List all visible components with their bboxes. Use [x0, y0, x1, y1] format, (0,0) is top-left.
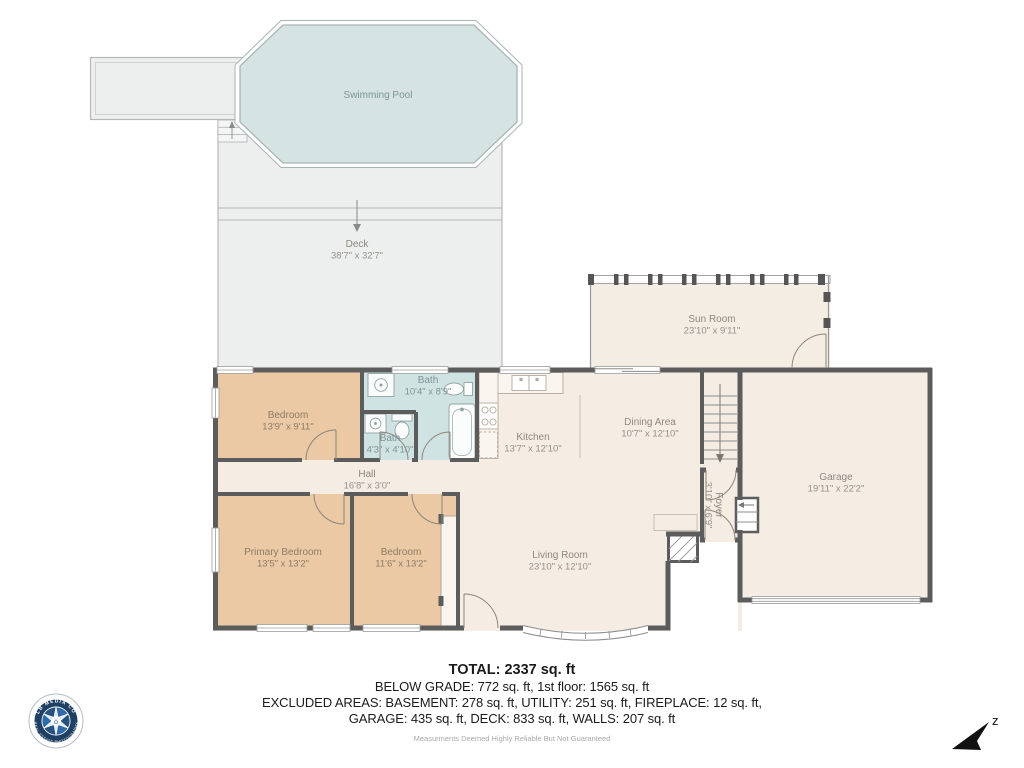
north-label: z: [992, 713, 999, 728]
bedroom-bottom-label: Bedroom: [381, 547, 422, 558]
bath-small-label: Bath: [380, 433, 401, 444]
svg-text:3'10" x 6'9": 3'10" x 6'9": [703, 482, 714, 529]
svg-text:10'7" x 12'10": 10'7" x 12'10": [621, 429, 678, 440]
sliding-door: [595, 367, 660, 374]
dining-label: Dining Area: [624, 417, 676, 428]
floor-plan-page: Swimming Pool Deck 38'7" x 32'7" Sun Roo…: [0, 0, 1024, 768]
svg-text:38'7" x 32'7": 38'7" x 32'7": [331, 251, 383, 262]
house-icon: ⌂: [54, 718, 58, 726]
window: [313, 625, 350, 632]
window: [217, 367, 253, 374]
garage-steps: [736, 498, 758, 532]
primary-bedroom-label: Primary Bedroom: [244, 547, 322, 558]
svg-text:4'3" x 4'10": 4'3" x 4'10": [367, 445, 414, 456]
svg-text:19'11" x 22'2": 19'11" x 22'2": [808, 484, 865, 495]
window: [363, 625, 420, 632]
svg-text:23'10" x 12'10": 23'10" x 12'10": [529, 562, 592, 573]
kitchen-stove: [479, 403, 498, 429]
below-grade-line: BELOW GRADE: 772 sq. ft, 1st floor: 1565…: [0, 679, 1024, 695]
hall-label: Hall: [358, 469, 375, 480]
window: [500, 367, 550, 374]
svg-text:11'6" x 13'2": 11'6" x 13'2": [375, 559, 426, 570]
bedroom-closet: [439, 514, 458, 626]
svg-text:13'5" x 13'2": 13'5" x 13'2": [257, 559, 309, 570]
svg-text:Foyer: Foyer: [713, 492, 724, 518]
garage-label: Garage: [819, 472, 853, 483]
area-summary: TOTAL: 2337 sq. ft BELOW GRADE: 772 sq. …: [0, 662, 1024, 743]
excluded-areas-line: EXCLUDED AREAS: BASEMENT: 278 sq. ft, UT…: [0, 695, 1024, 711]
svg-text:16'8" x 3'0": 16'8" x 3'0": [344, 481, 391, 492]
pool-label: Swimming Pool: [344, 90, 413, 101]
north-arrow: z: [936, 705, 1006, 755]
sun-room-label: Sun Room: [688, 314, 735, 325]
svg-text:23'10" x 9'11": 23'10" x 9'11": [684, 326, 741, 337]
small-bath-toilet: [392, 414, 412, 421]
window: [212, 528, 219, 572]
garage-door: [752, 597, 920, 604]
floor-plan-drawing: Swimming Pool Deck 38'7" x 32'7" Sun Roo…: [0, 0, 1024, 660]
garage-deck-line: GARAGE: 435 sq. ft, DECK: 833 sq. ft, WA…: [0, 711, 1024, 727]
svg-text:13'7" x 12'10": 13'7" x 12'10": [504, 444, 561, 455]
kitchen-sink: [512, 376, 529, 391]
disclaimer: Measurments Deemed Highly Reliable But N…: [0, 734, 1024, 743]
living-room-label: Living Room: [532, 550, 588, 561]
deck-label: Deck: [346, 239, 370, 250]
total-area: TOTAL: 2337 sq. ft: [0, 662, 1024, 679]
bath-main-label: Bath: [418, 375, 439, 386]
window: [392, 367, 448, 374]
window: [212, 388, 219, 418]
svg-text:10'4" x 8'9": 10'4" x 8'9": [405, 387, 452, 398]
window: [257, 625, 307, 632]
north-arrow-icon: [952, 722, 989, 750]
bedroom-top-label: Bedroom: [268, 410, 309, 421]
svg-text:13'9" x 9'11": 13'9" x 9'11": [262, 422, 313, 433]
photographer-logo-badge: LB MEDIA CO REAL ESTATE PHOTOGRAPHY ⌂: [26, 691, 86, 751]
kitchen-label: Kitchen: [516, 432, 549, 443]
